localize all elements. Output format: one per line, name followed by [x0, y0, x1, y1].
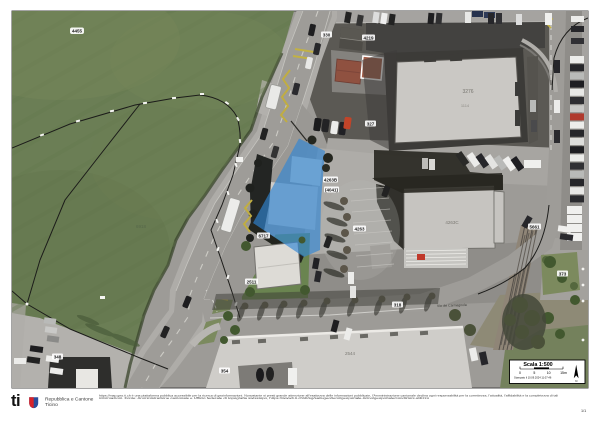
svg-text:Scala 1:500: Scala 1:500 — [523, 362, 552, 368]
svg-text:0: 0 — [519, 371, 521, 375]
svg-text:10: 10 — [547, 371, 551, 375]
svg-text:ti: ti — [11, 392, 20, 410]
svg-text:Repubblica e Cantone: Repubblica e Cantone — [45, 397, 94, 403]
svg-text:informazioni. Fonte: Amministr: informazioni. Fonte: Amministrazione can… — [99, 396, 430, 400]
svg-text:354: 354 — [221, 368, 229, 373]
svg-text:5661: 5661 — [529, 224, 540, 229]
svg-text:4263B: 4263B — [324, 177, 338, 182]
svg-text:6918: 6918 — [136, 224, 147, 229]
svg-text:2544: 2544 — [345, 351, 356, 356]
svg-text:4263: 4263 — [354, 226, 365, 231]
svg-text:348: 348 — [54, 354, 62, 359]
svg-text:Ticino: Ticino — [45, 402, 58, 408]
svg-text:1114: 1114 — [461, 103, 470, 108]
svg-text:6717: 6717 — [258, 233, 269, 238]
svg-text:5: 5 — [533, 371, 535, 375]
svg-text:2511: 2511 — [247, 279, 257, 284]
svg-text:4263C: 4263C — [445, 220, 459, 225]
svg-text:1/1: 1/1 — [581, 409, 586, 413]
svg-text:318: 318 — [394, 302, 402, 307]
svg-text:327: 327 — [367, 121, 375, 126]
svg-text:N: N — [575, 379, 577, 383]
svg-text:(4041): (4041) — [325, 187, 339, 192]
svg-text:Stampato il 10.09.2024 11:07:4: Stampato il 10.09.2024 11:07:46 — [514, 376, 552, 380]
svg-text:4219: 4219 — [363, 35, 374, 40]
svg-text:373: 373 — [559, 271, 567, 276]
svg-text:3276: 3276 — [462, 89, 473, 95]
svg-text:4455: 4455 — [72, 29, 83, 34]
svg-text:15m: 15m — [560, 371, 567, 375]
svg-text:330: 330 — [323, 32, 331, 37]
